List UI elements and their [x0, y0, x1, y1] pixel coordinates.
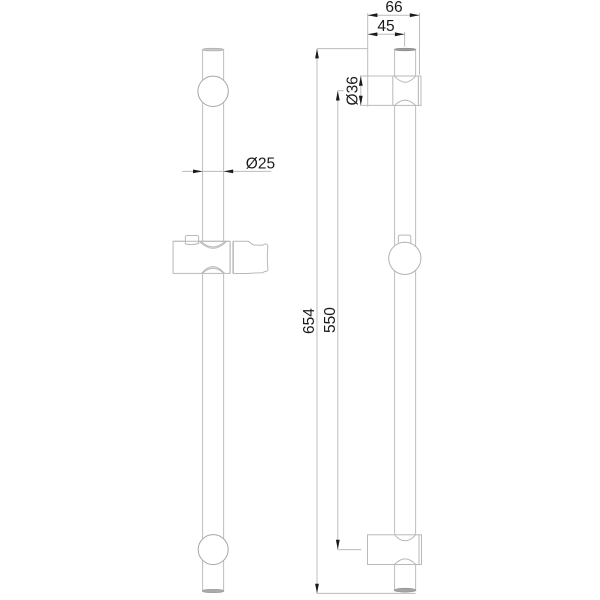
svg-text:Ø36: Ø36 [345, 76, 362, 105]
svg-text:550: 550 [322, 307, 339, 333]
svg-text:Ø25: Ø25 [246, 155, 275, 172]
svg-text:45: 45 [377, 18, 394, 35]
svg-text:654: 654 [301, 308, 318, 334]
svg-text:66: 66 [385, 0, 402, 16]
